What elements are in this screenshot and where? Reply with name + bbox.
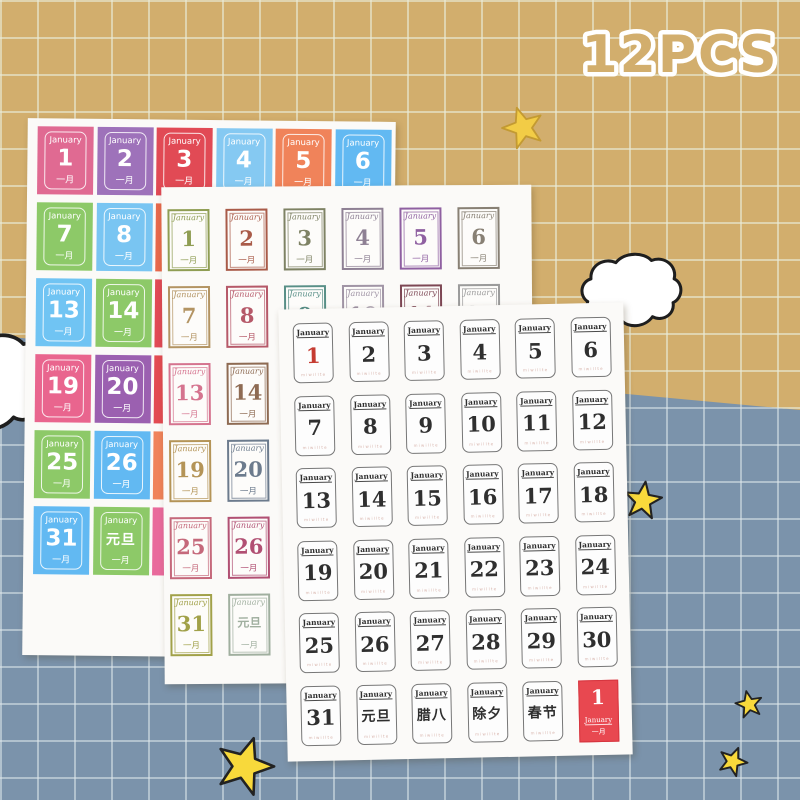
month-label: January bbox=[47, 363, 79, 373]
month-label: January bbox=[105, 516, 137, 526]
day-label: 7 bbox=[182, 299, 197, 331]
month-label: January bbox=[358, 616, 391, 627]
submonth-label: 一月 bbox=[239, 408, 256, 420]
month-label: January bbox=[580, 612, 613, 623]
sticker-stamp: January31一月 bbox=[170, 594, 212, 656]
sticker-tile: January3一月 bbox=[156, 127, 213, 196]
sticker-stamp: January29miwillte bbox=[521, 608, 562, 669]
day-label: 春节 bbox=[527, 696, 558, 730]
micro-text: miwillte bbox=[309, 734, 334, 740]
micro-text: miwillte bbox=[581, 511, 606, 517]
day-label: 17 bbox=[523, 478, 553, 512]
month-label: January bbox=[49, 135, 81, 145]
day-label: 28 bbox=[471, 624, 501, 658]
micro-text: miwillte bbox=[415, 514, 440, 520]
sticker-tile: January元旦一月 bbox=[93, 507, 150, 576]
micro-text: miwillte bbox=[585, 656, 610, 662]
month-label: January bbox=[355, 471, 388, 482]
sticker-stamp: January13miwillte bbox=[296, 467, 337, 528]
sticker-stamp: January25一月 bbox=[170, 517, 212, 579]
submonth-label: 一月 bbox=[54, 400, 72, 413]
day-label: 8 bbox=[363, 409, 378, 443]
sticker-stamp: January8一月 bbox=[226, 286, 268, 348]
quantity-badge-text: 12PCS bbox=[581, 25, 778, 85]
submonth-label: 一月 bbox=[239, 331, 256, 343]
day-label: 腊八 bbox=[416, 698, 447, 732]
month-label: January bbox=[289, 212, 320, 221]
submonth-label: 一月 bbox=[240, 485, 257, 497]
sticker-stamp: January19miwillte bbox=[297, 540, 338, 601]
sticker-stamp: January4miwillte bbox=[459, 319, 500, 380]
sticker-stamp: January28miwillte bbox=[465, 609, 506, 670]
sticker-stamp: January6miwillte bbox=[570, 317, 611, 378]
sticker-frame: January1一月 bbox=[44, 131, 87, 189]
sticker-stamp: January14一月 bbox=[226, 363, 268, 425]
submonth-label: 一月 bbox=[53, 476, 71, 489]
micro-text: miwillte bbox=[364, 733, 389, 739]
sticker-frame: January4一月 bbox=[223, 133, 266, 191]
sticker-stamp: January22miwillte bbox=[464, 536, 505, 597]
micro-text: miwillte bbox=[580, 438, 605, 444]
month-label: January bbox=[233, 598, 264, 607]
sticker-frame: January2一月 bbox=[104, 132, 147, 190]
micro-text: miwillte bbox=[472, 586, 497, 592]
micro-text: miwillte bbox=[363, 660, 388, 666]
day-label: 1 bbox=[306, 338, 321, 372]
month-label: January bbox=[296, 328, 329, 339]
sticker-stamp: January春节miwillte bbox=[522, 680, 563, 741]
sticker-tile: January26一月 bbox=[93, 431, 150, 500]
month-label: January bbox=[106, 440, 138, 450]
month-label: January bbox=[46, 439, 78, 449]
day-label: 31 bbox=[306, 700, 336, 734]
day-label: 11 bbox=[522, 406, 552, 440]
day-label: 31 bbox=[45, 525, 77, 552]
sticker-tile: January20一月 bbox=[94, 355, 151, 424]
month-label: January bbox=[463, 288, 494, 297]
day-label: 6 bbox=[471, 220, 486, 252]
day-label: 3 bbox=[417, 336, 432, 370]
day-label: 13 bbox=[48, 297, 80, 324]
sticker-stamp: January7一月 bbox=[168, 286, 210, 348]
sticker-stamp: January31miwillte bbox=[300, 685, 341, 746]
month-label: January bbox=[352, 326, 385, 337]
sticker-stamp: January2miwillte bbox=[348, 321, 389, 382]
month-label: January bbox=[287, 138, 319, 148]
sticker-stamp: January8miwillte bbox=[350, 394, 391, 455]
submonth-label: 一月 bbox=[235, 174, 253, 187]
day-label: 6 bbox=[583, 332, 598, 366]
month-label: January bbox=[353, 399, 386, 410]
month-label: January bbox=[356, 544, 389, 555]
month-label: January bbox=[175, 521, 206, 530]
sticker-frame: January8一月 bbox=[103, 208, 146, 266]
micro-text: miwillte bbox=[413, 442, 438, 448]
day-label: 5 bbox=[528, 334, 543, 368]
submonth-label: 一月 bbox=[180, 254, 197, 266]
submonth-label: 一月 bbox=[116, 173, 134, 186]
sticker-stamp: January5一月 bbox=[399, 207, 441, 269]
micro-text: miwillte bbox=[528, 584, 553, 590]
submonth-label: 一月 bbox=[296, 253, 313, 265]
submonth-label: 一月 bbox=[55, 324, 73, 337]
month-label: January bbox=[228, 137, 260, 147]
micro-text: miwillte bbox=[418, 659, 443, 665]
sticker-stamp: January元旦miwillte bbox=[356, 684, 397, 745]
month-label: January bbox=[231, 213, 262, 222]
month-label: January bbox=[577, 467, 610, 478]
micro-text: miwillte bbox=[474, 658, 499, 664]
month-label: January bbox=[360, 689, 393, 700]
sticker-stamp: January除夕miwillte bbox=[467, 681, 508, 742]
micro-text: miwillte bbox=[526, 512, 551, 518]
month-label: January bbox=[301, 545, 334, 556]
day-label: 10 bbox=[466, 407, 496, 441]
sticker-stamp: January19一月 bbox=[169, 440, 211, 502]
sticker-frame: January7一月 bbox=[43, 207, 86, 265]
month-label: January bbox=[523, 540, 556, 551]
month-label: January bbox=[232, 444, 263, 453]
sticker-stamp: January24miwillte bbox=[575, 534, 616, 595]
month-label: January bbox=[466, 469, 499, 480]
submonth-label: 一月 bbox=[52, 552, 70, 565]
micro-text: miwillte bbox=[470, 513, 495, 519]
day-label: 13 bbox=[175, 376, 204, 408]
day-label: 19 bbox=[47, 373, 79, 400]
sticker-frame: January26一月 bbox=[100, 436, 143, 494]
day-label: 19 bbox=[303, 555, 333, 589]
micro-text: miwillte bbox=[356, 371, 381, 377]
day-label: 29 bbox=[526, 623, 556, 657]
sticker-stamp: January元旦一月 bbox=[228, 594, 270, 656]
day-label: 25 bbox=[46, 449, 78, 476]
sticker-stamp: January3miwillte bbox=[404, 320, 445, 381]
submonth-label: 一月 bbox=[175, 174, 193, 187]
submonth-label: 一月 bbox=[113, 401, 131, 414]
sticker-stamp: January1一月 bbox=[167, 209, 209, 271]
month-label: January bbox=[415, 688, 448, 699]
micro-text: miwillte bbox=[523, 367, 548, 373]
month-label: January bbox=[174, 444, 205, 453]
month-label: January bbox=[407, 325, 440, 336]
submonth-label: 一月 bbox=[112, 553, 130, 566]
month-label: January bbox=[173, 213, 204, 222]
sticker-stamp: January16miwillte bbox=[462, 464, 503, 525]
sticker-frame: January6一月 bbox=[342, 134, 385, 192]
micro-text: miwillte bbox=[469, 441, 494, 447]
day-label: 26 bbox=[234, 530, 263, 562]
month-label: January bbox=[289, 289, 320, 298]
day-label: 8 bbox=[240, 299, 255, 331]
submonth-label: 一月 bbox=[181, 408, 198, 420]
sticker-stamp: January3一月 bbox=[283, 208, 325, 270]
sticker-stamp: January9miwillte bbox=[405, 393, 446, 454]
submonth-label: 一月 bbox=[112, 477, 130, 490]
day-label: 4 bbox=[236, 147, 252, 174]
submonth-label: 一月 bbox=[115, 249, 133, 262]
day-label: 12 bbox=[577, 405, 607, 439]
month-label: January bbox=[520, 395, 553, 406]
month-label: January bbox=[521, 468, 554, 479]
micro-text: miwillte bbox=[420, 732, 445, 738]
micro-text: miwillte bbox=[358, 443, 383, 449]
sticker-stamp: January27miwillte bbox=[410, 610, 451, 671]
sticker-sheet-monochrome: January1miwillteJanuary2miwillteJanuary3… bbox=[278, 302, 632, 761]
day-label: 19 bbox=[176, 453, 205, 485]
sticker-stamp: January腊八miwillte bbox=[411, 683, 452, 744]
sticker-stamp: January6一月 bbox=[457, 207, 499, 269]
submonth-label: 一月 bbox=[412, 252, 429, 264]
month-label: January bbox=[303, 618, 336, 629]
sticker-stamp: January20miwillte bbox=[353, 539, 394, 600]
day-label: 1 bbox=[57, 145, 73, 172]
sticker-stamp: January21miwillte bbox=[408, 538, 449, 599]
day-label: 15 bbox=[412, 481, 442, 515]
day-label: 2 bbox=[361, 337, 376, 371]
sticker-tile: January14一月 bbox=[95, 279, 152, 348]
day-label: 1 bbox=[181, 222, 196, 254]
star-icon bbox=[731, 686, 767, 722]
day-label: 18 bbox=[579, 477, 609, 511]
day-label: 26 bbox=[106, 450, 138, 477]
month-label: January bbox=[409, 398, 442, 409]
month-label: January bbox=[49, 211, 81, 221]
micro-text: miwillte bbox=[531, 729, 556, 735]
sticker-frame: January25一月 bbox=[41, 435, 84, 493]
day-label: 元旦 bbox=[361, 699, 392, 733]
micro-text: miwillte bbox=[583, 583, 608, 589]
submonth-label: 一月 bbox=[354, 253, 371, 265]
sticker-stamp: January13一月 bbox=[168, 363, 210, 425]
submonth-label: 一月 bbox=[182, 485, 199, 497]
sticker-stamp: January26一月 bbox=[228, 517, 270, 579]
submonth-label: 一月 bbox=[183, 639, 200, 651]
day-label: 21 bbox=[414, 553, 444, 587]
sticker-stamp: January26miwillte bbox=[354, 611, 395, 672]
day-label: 1 bbox=[591, 686, 605, 706]
day-label: 6 bbox=[355, 149, 371, 176]
sticker-frame: January3一月 bbox=[163, 133, 206, 191]
submonth-label: 一月 bbox=[470, 252, 487, 264]
day-label: 22 bbox=[469, 552, 499, 586]
micro-text: miwillte bbox=[307, 662, 332, 668]
day-label: 25 bbox=[176, 530, 205, 562]
sticker-tile: January25一月 bbox=[34, 430, 91, 499]
month-label: January bbox=[524, 613, 557, 624]
sticker-frame: January5一月 bbox=[282, 134, 325, 192]
sticker-tile: January19一月 bbox=[35, 354, 92, 423]
sticker-stamp: January14miwillte bbox=[351, 466, 392, 527]
sticker-frame: January19一月 bbox=[42, 359, 85, 417]
micro-text: miwillte bbox=[301, 372, 326, 378]
month-label: January bbox=[463, 324, 496, 335]
day-label: 除夕 bbox=[472, 697, 503, 731]
month-label: January bbox=[347, 212, 378, 221]
day-label: 14 bbox=[107, 298, 139, 325]
month-label: January bbox=[173, 290, 204, 299]
sticker-stamp: January12miwillte bbox=[572, 389, 613, 450]
day-label: 24 bbox=[580, 550, 610, 584]
sticker-tile: January13一月 bbox=[35, 278, 92, 347]
month-label: January bbox=[463, 211, 494, 220]
sticker-stamp: January2一月 bbox=[225, 209, 267, 271]
month-label: January bbox=[175, 598, 206, 607]
day-label: 26 bbox=[360, 627, 390, 661]
month-label: January bbox=[107, 364, 139, 374]
day-label: 30 bbox=[582, 622, 612, 656]
day-label: 3 bbox=[297, 221, 312, 253]
month-label: January bbox=[299, 473, 332, 484]
sticker-stamp: January30miwillte bbox=[576, 607, 617, 668]
day-label: 4 bbox=[472, 335, 487, 369]
sticker-tile: January1一月 bbox=[37, 126, 94, 195]
sticker-stamp: January15miwillte bbox=[407, 465, 448, 526]
day-label: 9 bbox=[418, 408, 433, 442]
day-label: 14 bbox=[233, 376, 262, 408]
month-label: January bbox=[347, 289, 378, 298]
submonth-label: 一月 bbox=[238, 254, 255, 266]
month-label: January bbox=[526, 685, 559, 696]
micro-text: miwillte bbox=[467, 368, 492, 374]
sticker-stamp: January23miwillte bbox=[519, 535, 560, 596]
sticker-frame: January20一月 bbox=[101, 360, 144, 418]
day-label: 元旦 bbox=[106, 526, 136, 553]
month-label: January bbox=[405, 211, 436, 220]
month-label: January bbox=[410, 470, 443, 481]
sticker-stamp: January11miwillte bbox=[516, 390, 557, 451]
month-label: January bbox=[107, 288, 139, 298]
micro-text: miwillte bbox=[304, 517, 329, 523]
new-year-stamp: 1January一月 bbox=[578, 679, 619, 742]
day-label: 25 bbox=[304, 628, 334, 662]
sticker-frame: January13一月 bbox=[42, 283, 85, 341]
month-label: January bbox=[405, 288, 436, 297]
sticker-frame: January元旦一月 bbox=[100, 512, 143, 570]
micro-text: miwillte bbox=[361, 588, 386, 594]
micro-text: miwillte bbox=[578, 366, 603, 372]
sticker-tile: January31一月 bbox=[33, 506, 90, 575]
sticker-stamp: January4一月 bbox=[341, 208, 383, 270]
quantity-badge: 12PCS bbox=[573, 16, 788, 92]
month-label: January bbox=[574, 322, 607, 333]
submonth-label: 一月 bbox=[241, 639, 258, 651]
sticker-stamp: January10miwillte bbox=[461, 392, 502, 453]
sticker-tile: January7一月 bbox=[36, 202, 93, 271]
day-label: 7 bbox=[307, 411, 322, 445]
month-label: January bbox=[575, 394, 608, 405]
sticker-tile: January2一月 bbox=[97, 127, 154, 196]
day-label: 5 bbox=[413, 220, 428, 252]
day-label: 23 bbox=[525, 551, 555, 585]
month-label: January bbox=[585, 715, 613, 725]
month-label: January bbox=[471, 687, 504, 698]
month-label: January bbox=[45, 515, 77, 525]
month-label: January bbox=[168, 137, 200, 147]
month-label: January bbox=[233, 521, 264, 530]
micro-text: miwillte bbox=[360, 515, 385, 521]
day-label: 20 bbox=[233, 453, 262, 485]
month-label: January bbox=[578, 539, 611, 550]
sticker-stamp: January5miwillte bbox=[515, 318, 556, 379]
month-label: January bbox=[108, 212, 140, 222]
submonth-label: 一月 bbox=[55, 248, 73, 261]
month-label: January bbox=[232, 367, 263, 376]
day-label: 7 bbox=[56, 221, 72, 248]
month-label: January bbox=[174, 367, 205, 376]
month-label: January bbox=[413, 615, 446, 626]
month-label: January bbox=[412, 543, 445, 554]
month-label: January bbox=[518, 323, 551, 334]
day-label: 2 bbox=[239, 222, 254, 254]
micro-text: miwillte bbox=[417, 587, 442, 593]
submonth-label: 一月 bbox=[114, 325, 132, 338]
sticker-stamp: January17miwillte bbox=[518, 463, 559, 524]
submonth-label: 一月 bbox=[592, 726, 606, 736]
sticker-stamp: January20一月 bbox=[227, 440, 269, 502]
submonth-label: 一月 bbox=[181, 331, 198, 343]
month-label: January bbox=[347, 138, 379, 148]
sticker-tile: January8一月 bbox=[96, 203, 153, 272]
day-label: 3 bbox=[176, 147, 192, 174]
micro-text: miwillte bbox=[412, 369, 437, 375]
sticker-stamp: January25miwillte bbox=[299, 612, 340, 673]
month-label: January bbox=[48, 287, 80, 297]
sticker-frame: January14一月 bbox=[102, 284, 145, 342]
month-label: January bbox=[467, 542, 500, 553]
month-label: January bbox=[464, 397, 497, 408]
day-label: 8 bbox=[116, 222, 132, 249]
day-label: 13 bbox=[301, 483, 331, 517]
month-label: January bbox=[304, 690, 337, 701]
micro-text: miwillte bbox=[529, 657, 554, 663]
day-label: 27 bbox=[415, 626, 445, 660]
day-label: 元旦 bbox=[237, 607, 261, 639]
sticker-stamp: January7miwillte bbox=[294, 395, 335, 456]
sticker-stamp: January1miwillte bbox=[293, 323, 334, 384]
micro-text: miwillte bbox=[303, 444, 328, 450]
day-label: 31 bbox=[177, 607, 206, 639]
day-label: 20 bbox=[106, 374, 138, 401]
submonth-label: 一月 bbox=[182, 562, 199, 574]
submonth-label: 一月 bbox=[56, 172, 74, 185]
sticker-frame: January31一月 bbox=[40, 511, 83, 569]
month-label: January bbox=[109, 136, 141, 146]
day-label: 5 bbox=[295, 148, 311, 175]
day-label: 20 bbox=[358, 554, 388, 588]
day-label: 4 bbox=[355, 221, 370, 253]
month-label: January bbox=[231, 290, 262, 299]
micro-text: miwillte bbox=[524, 440, 549, 446]
submonth-label: 一月 bbox=[240, 562, 257, 574]
micro-text: miwillte bbox=[475, 731, 500, 737]
month-label: January bbox=[298, 400, 331, 411]
sticker-stamp: January18miwillte bbox=[573, 462, 614, 523]
micro-text: miwillte bbox=[306, 589, 331, 595]
month-label: January bbox=[469, 614, 502, 625]
product-photo: January1一月January2一月January3一月January4一月… bbox=[0, 0, 800, 800]
day-label: 2 bbox=[117, 146, 133, 173]
day-label: 16 bbox=[468, 479, 498, 513]
day-label: 14 bbox=[357, 482, 387, 516]
